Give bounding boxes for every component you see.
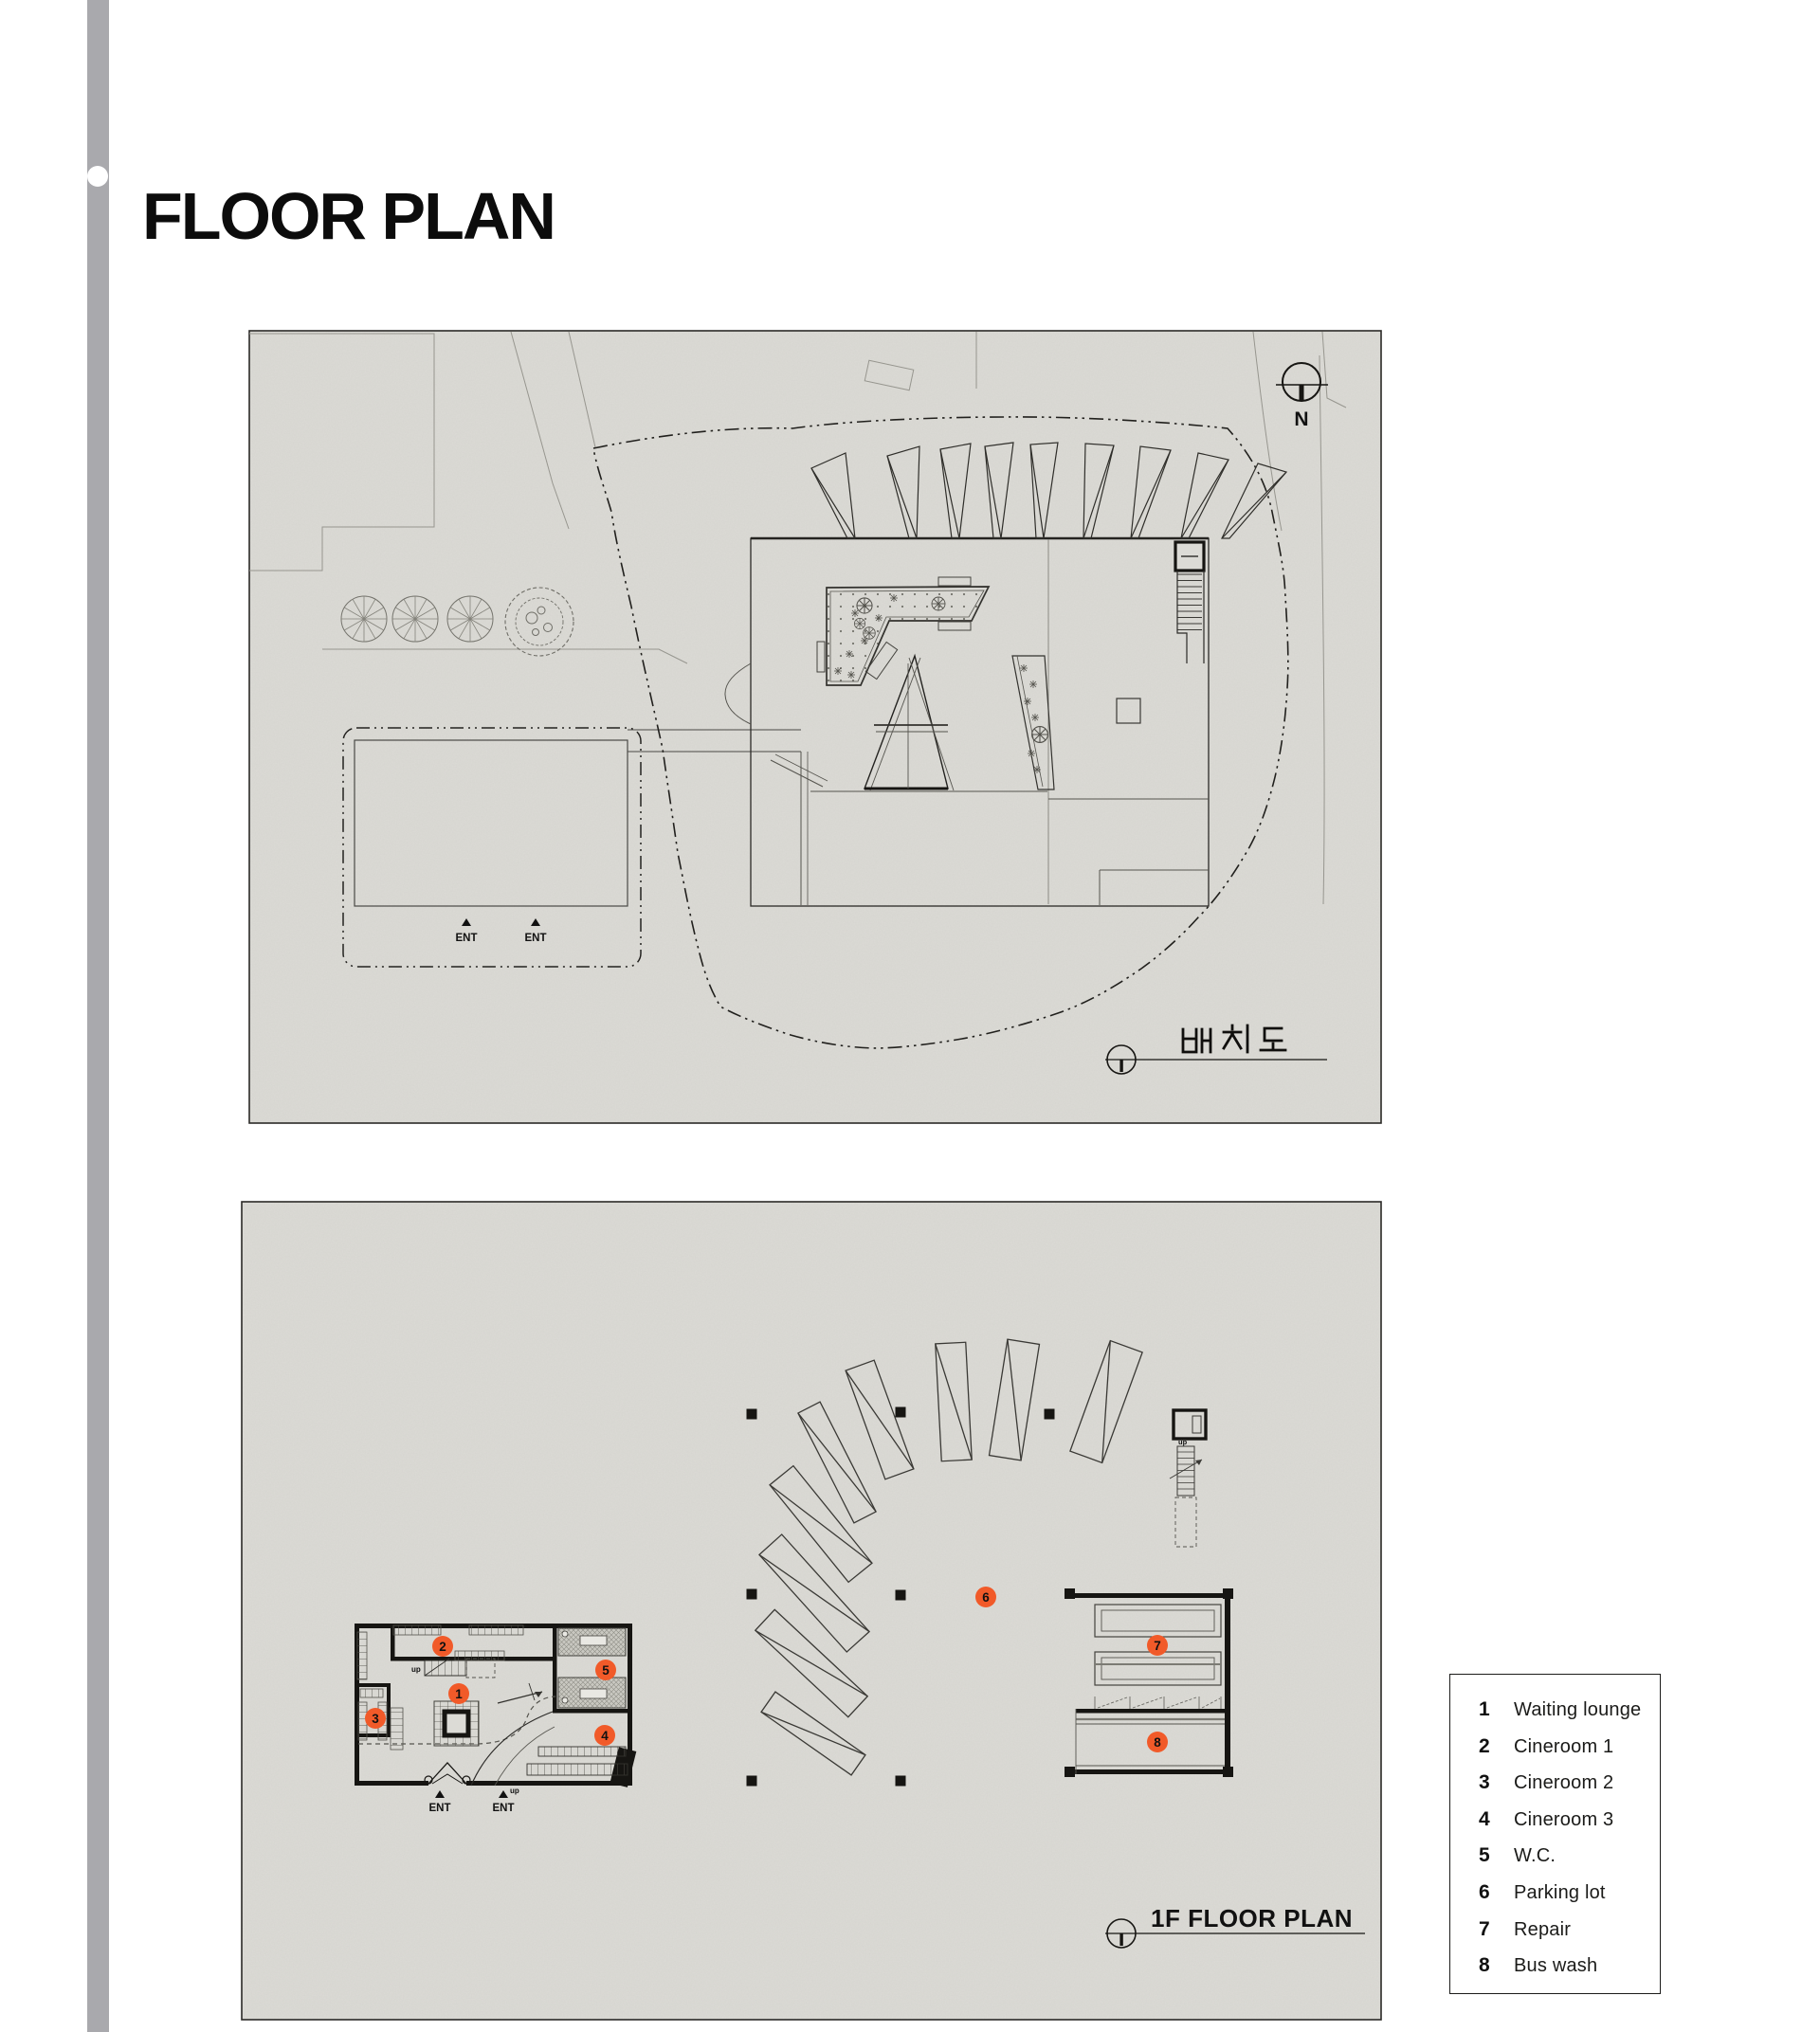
ent-label: ENT: [429, 1803, 451, 1814]
site-plan-panel: ENT ENT N 배치도: [248, 330, 1382, 1124]
legend-item-label: Cineroom 3: [1514, 1802, 1613, 1839]
info-column: [434, 1701, 479, 1746]
plan-marker-8: 8: [1154, 1735, 1161, 1750]
legend-item: 8Bus wash: [1450, 1948, 1660, 1985]
legend-item: 2Cineroom 1: [1450, 1729, 1660, 1766]
svg-text:up: up: [510, 1787, 519, 1795]
legend-item-number: 6: [1450, 1875, 1514, 1912]
legend-box: 1Waiting lounge2Cineroom 13Cineroom 24Ci…: [1449, 1674, 1661, 1994]
legend-item: 1Waiting lounge: [1450, 1692, 1660, 1729]
legend-item-number: 5: [1450, 1838, 1514, 1875]
north-label: N: [1294, 408, 1308, 430]
legend-item: 7Repair: [1450, 1912, 1660, 1949]
left-accent-bar: [87, 0, 109, 2032]
svg-text:1F FLOOR PLAN: 1F FLOOR PLAN: [1151, 1904, 1353, 1932]
plan-marker-2: 2: [439, 1640, 446, 1654]
legend-item-number: 1: [1450, 1692, 1514, 1729]
svg-text:up: up: [411, 1665, 421, 1674]
paper-texture: [249, 331, 1381, 1123]
legend-item-label: Waiting lounge: [1514, 1692, 1641, 1729]
plan-marker-7: 7: [1154, 1639, 1161, 1653]
legend-item-label: Bus wash: [1514, 1948, 1597, 1985]
page-title: FLOOR PLAN: [142, 183, 555, 249]
legend-item: 3Cineroom 2: [1450, 1765, 1660, 1802]
floor-plan-panel: up: [241, 1201, 1382, 2021]
legend-item-label: Repair: [1514, 1912, 1571, 1949]
legend-item-label: W.C.: [1514, 1838, 1556, 1875]
legend-item: 4Cineroom 3: [1450, 1802, 1660, 1839]
legend-item: 5W.C.: [1450, 1838, 1660, 1875]
ent-label: ENT: [456, 933, 478, 944]
svg-text:up: up: [1178, 1438, 1188, 1446]
legend-item-label: Parking lot: [1514, 1875, 1606, 1912]
legend-item: 6Parking lot: [1450, 1875, 1660, 1912]
legend-item-label: Cineroom 2: [1514, 1765, 1613, 1802]
legend-item-number: 2: [1450, 1729, 1514, 1766]
plan-marker-6: 6: [982, 1590, 990, 1605]
plan-marker-1: 1: [455, 1687, 463, 1701]
plan-marker-4: 4: [601, 1729, 609, 1743]
ent-label: ENT: [493, 1803, 515, 1814]
legend-item-number: 8: [1450, 1948, 1514, 1985]
plan-marker-3: 3: [372, 1712, 379, 1726]
ent-label: ENT: [525, 933, 547, 944]
legend-item-number: 7: [1450, 1912, 1514, 1949]
legend-item-number: 4: [1450, 1802, 1514, 1839]
legend-item-number: 3: [1450, 1765, 1514, 1802]
paper-texture: [242, 1202, 1381, 2020]
plan-marker-5: 5: [602, 1663, 610, 1678]
legend-item-label: Cineroom 1: [1514, 1729, 1613, 1766]
page: FLOOR PLAN: [0, 0, 1820, 2032]
bar-bullet-dot: [87, 166, 108, 187]
